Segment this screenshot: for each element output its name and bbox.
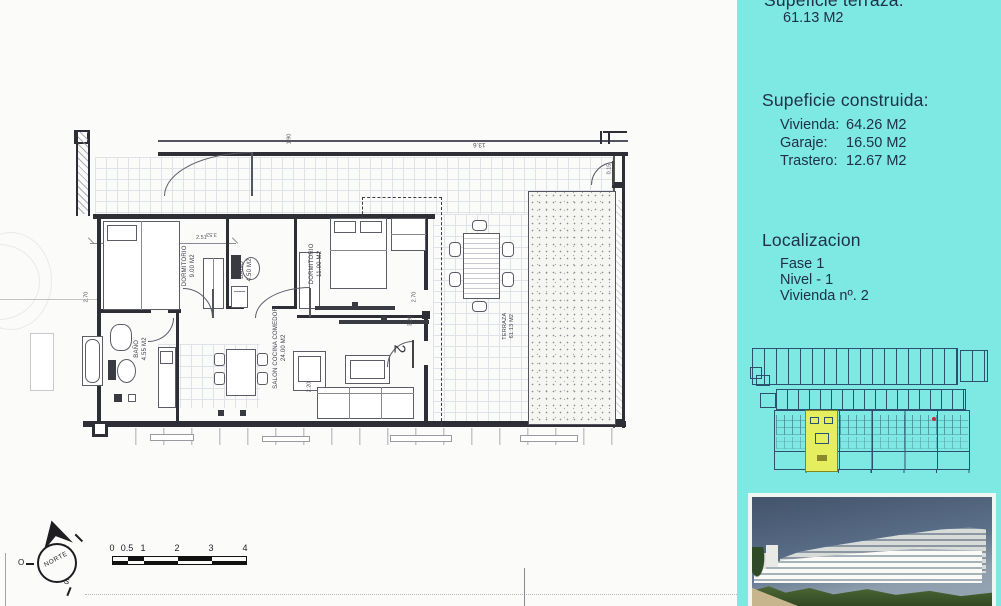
- wall-segment: [88, 130, 90, 216]
- neighbor-unit-block: [520, 435, 578, 442]
- wall-segment: [600, 131, 602, 144]
- construida-item: Vivienda:64.26 M2: [780, 117, 906, 133]
- wardrobe-line: [391, 234, 426, 235]
- construida-item: Trastero:12.67 M2: [780, 153, 906, 169]
- info-panel: Supeficie terraza: 61.13 M2 Supeficie co…: [737, 0, 1001, 606]
- bed-pillow: [334, 221, 356, 233]
- localizacion-heading: Localizacion: [762, 230, 861, 251]
- neighbor-unit-block: [390, 435, 452, 442]
- scale-tick-label: 2: [174, 543, 179, 553]
- door-leaf: [212, 289, 214, 318]
- room-label-bano-1: BAÑO4.50 M2: [239, 230, 255, 310]
- site-plan-red-mark: [932, 417, 936, 421]
- room-label-bano-2: BAÑO4.55 M2: [134, 309, 150, 389]
- item-value: 64.26 M2: [846, 117, 906, 133]
- wall-segment: [226, 219, 229, 309]
- bed-pillow: [107, 225, 137, 241]
- dining-table: [226, 349, 256, 396]
- entry-block: [760, 393, 776, 408]
- coffee-table-inner: [350, 360, 385, 379]
- scale-tick-label: 1: [140, 543, 145, 553]
- unit-number: 2: [389, 345, 407, 354]
- localizacion-item: Nivel - 1: [780, 272, 833, 288]
- garage-row: [752, 348, 958, 385]
- sofa: [317, 387, 414, 419]
- chair: [214, 372, 225, 385]
- highlighted-unit-room: [824, 417, 833, 424]
- title-block-line: [85, 594, 745, 595]
- chair: [257, 353, 268, 366]
- window-hatch: [78, 132, 88, 214]
- construida-heading: Supeficie construida:: [762, 90, 929, 111]
- sofa-cushion-line: [349, 387, 350, 419]
- localizacion-item: Fase 1: [780, 256, 824, 272]
- wall-segment: [176, 309, 179, 427]
- room-label-dormitorio-1: DORMITORIO9.00 M2: [182, 226, 198, 306]
- scale-tick-label: 0.5: [121, 543, 134, 553]
- scale-bar-bar: [112, 556, 247, 565]
- balcony-stubs: [774, 469, 970, 473]
- highlighted-unit-mark: [817, 455, 827, 461]
- bed-pillow: [360, 221, 382, 233]
- dimension-label: 3.20: [407, 316, 413, 327]
- terrace-boundary-dashed: [441, 197, 442, 426]
- door-leaf: [251, 152, 253, 196]
- scale-tick-label: 0: [109, 543, 114, 553]
- neighbor-unit-block: [262, 436, 310, 442]
- sideboard-tick: [381, 316, 387, 320]
- toilet-tank: [108, 360, 116, 380]
- building-photo: [748, 493, 996, 606]
- compass-west-label: O: [18, 558, 24, 567]
- compass-tick: [66, 587, 71, 596]
- scale-tick-label: 4: [242, 543, 247, 553]
- title-block-line: [524, 568, 525, 606]
- column: [92, 421, 108, 437]
- door-leaf: [412, 340, 414, 368]
- storage-row: [776, 389, 966, 410]
- toilet-bowl: [117, 359, 136, 383]
- sideboard: [315, 306, 395, 310]
- room-label-salon: SALON COCINA COMEDOR24.00 M2: [273, 298, 289, 398]
- dimension-label: 2.20: [306, 382, 312, 393]
- compass-tick: [75, 534, 83, 542]
- floor-drain: [114, 394, 122, 402]
- room-label-terraza: TERRAZA61.13 M2: [502, 286, 516, 366]
- washbasin: [110, 324, 132, 351]
- armchair-seat: [298, 356, 321, 382]
- neighbor-fixture: [30, 333, 54, 391]
- bathtub-inner: [85, 339, 100, 383]
- dimension-label: 1.90: [286, 134, 292, 145]
- wall-segment: [97, 214, 101, 427]
- chair: [449, 272, 461, 287]
- wall-segment: [603, 131, 627, 133]
- garage-row-ext: [960, 350, 988, 382]
- sofa-back-line: [317, 393, 414, 394]
- wall-segment: [424, 365, 428, 427]
- chair: [449, 242, 461, 257]
- sideboard: [339, 320, 429, 324]
- patio-line: [774, 451, 970, 452]
- terrace-boundary-dashed: [362, 197, 363, 219]
- dimension-label: 13.6: [473, 141, 486, 148]
- chair: [472, 301, 487, 312]
- item-label: Garaje:: [780, 135, 846, 151]
- palm-tree: [748, 547, 766, 581]
- sideboard-tick: [352, 302, 358, 306]
- dimension-label: 2.70: [83, 292, 89, 303]
- chair: [502, 242, 514, 257]
- item-label: Trastero:: [780, 153, 846, 169]
- sofa-cushion-line: [381, 387, 382, 419]
- item-value: 12.67 M2: [846, 153, 906, 169]
- dimension-label: 3.53: [206, 231, 217, 237]
- threshold: [218, 410, 224, 416]
- site-plan-map: [750, 347, 990, 480]
- chair: [257, 372, 268, 385]
- building-tower: [766, 545, 778, 567]
- north-compass: NORTE O S: [20, 515, 100, 600]
- wall-block: [422, 311, 430, 319]
- terraza-value: 61.13 M2: [783, 10, 843, 26]
- scale-tick-label: 3: [208, 543, 213, 553]
- highlighted-unit: [805, 410, 838, 472]
- bed-line: [330, 250, 387, 251]
- window-hatch: [615, 200, 622, 415]
- threshold: [240, 410, 246, 416]
- dimension-label: 2.70: [411, 292, 417, 303]
- compass-south-label: S: [63, 576, 71, 586]
- scale-bar: 0 0.5 1 2 3 4: [112, 543, 252, 565]
- floor-drain: [128, 394, 136, 402]
- wall-segment: [608, 131, 610, 144]
- localizacion-item: Vivienda nº. 2: [780, 288, 869, 304]
- dimension-label: 0.15: [606, 164, 612, 175]
- construida-item: Garaje:16.50 M2: [780, 135, 906, 151]
- chair: [214, 353, 225, 366]
- floor-plan: 2.51 1.90 13.6 3.53 0.15: [0, 0, 737, 606]
- chair: [502, 272, 514, 287]
- bed-line: [141, 221, 142, 310]
- item-value: 16.50 M2: [846, 135, 906, 151]
- chair: [472, 220, 487, 231]
- page-border-line: [5, 553, 6, 606]
- kitchen-sink: [160, 351, 173, 364]
- terrace-boundary-dashed: [362, 197, 442, 198]
- highlighted-unit-room: [815, 433, 829, 444]
- stair-block: [756, 375, 770, 386]
- highlighted-unit-room: [810, 417, 819, 424]
- neighbor-unit-block: [150, 434, 194, 441]
- brochure-page: 2.51 1.90 13.6 3.53 0.15: [0, 0, 1001, 606]
- wall-segment: [622, 152, 625, 428]
- terrace-table: [463, 233, 500, 299]
- room-label-dormitorio-2: DORMITORIO11.00 M2: [309, 224, 325, 304]
- terrace-gravel-area: [528, 191, 616, 425]
- wall-segment: [158, 140, 628, 142]
- item-label: Vivienda:: [780, 117, 846, 133]
- compass-tick: [26, 563, 34, 565]
